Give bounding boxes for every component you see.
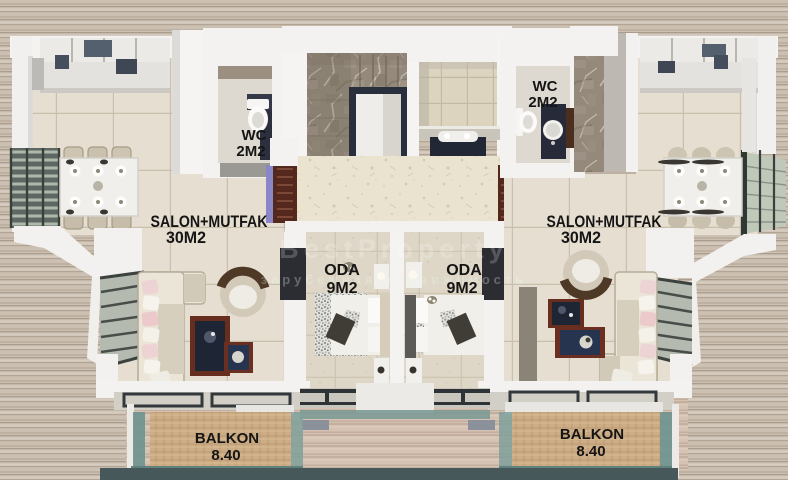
svg-text:зарубежная недвижимость: зарубежная недвижимость xyxy=(261,272,527,287)
svg-text:30M2: 30M2 xyxy=(166,228,206,247)
svg-text:ODA: ODA xyxy=(446,262,482,279)
svg-text:8.40: 8.40 xyxy=(576,443,605,460)
svg-text:WC: WC xyxy=(533,78,558,95)
svg-text:BestProperty: BestProperty xyxy=(279,234,509,264)
svg-text:2M2: 2M2 xyxy=(236,143,265,160)
svg-text:ODA: ODA xyxy=(324,262,360,279)
svg-text:BALKON: BALKON xyxy=(195,430,259,447)
svg-text:9M2: 9M2 xyxy=(326,280,357,297)
svg-text:WC: WC xyxy=(242,127,267,144)
svg-text:8.40: 8.40 xyxy=(211,447,240,464)
svg-text:9M2: 9M2 xyxy=(446,280,477,297)
svg-text:BALKON: BALKON xyxy=(560,426,624,443)
svg-text:30M2: 30M2 xyxy=(561,228,601,247)
svg-text:2M2: 2M2 xyxy=(528,94,557,111)
